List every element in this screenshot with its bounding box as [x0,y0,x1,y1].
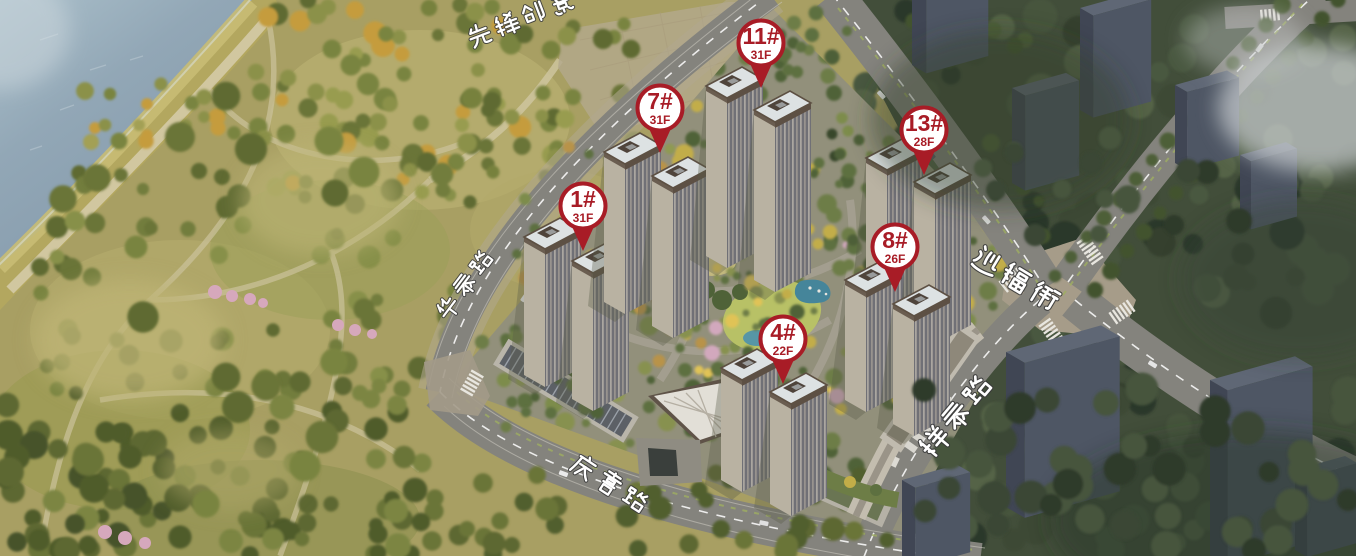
svg-text:1#: 1# [570,186,596,212]
svg-text:31F: 31F [751,48,772,62]
svg-text:11#: 11# [742,23,779,49]
svg-text:28F: 28F [914,135,935,149]
svg-text:8#: 8# [882,227,908,253]
svg-text:31F: 31F [573,211,594,225]
svg-text:31F: 31F [650,113,671,127]
svg-text:13#: 13# [905,110,944,136]
svg-text:22F: 22F [773,344,794,358]
svg-text:4#: 4# [770,319,796,345]
svg-text:26F: 26F [885,252,906,266]
svg-text:7#: 7# [647,88,673,114]
